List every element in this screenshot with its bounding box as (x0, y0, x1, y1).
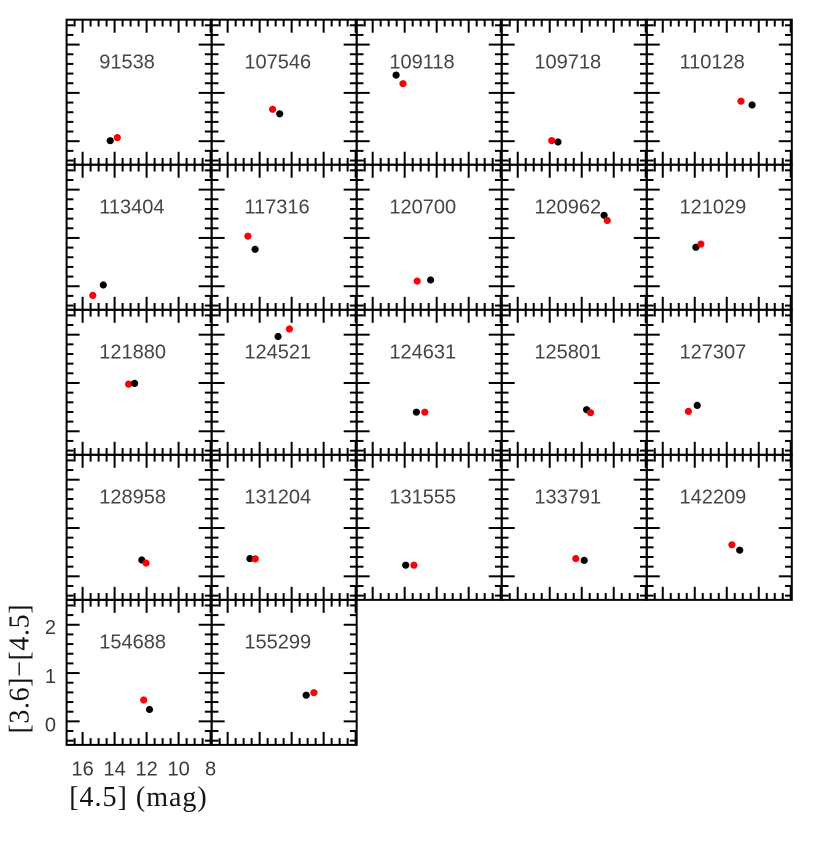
svg-text:124631: 124631 (389, 341, 456, 363)
svg-text:131204: 131204 (244, 486, 311, 508)
svg-text:121029: 121029 (679, 196, 746, 218)
svg-text:1: 1 (45, 666, 56, 688)
svg-text:154688: 154688 (99, 631, 166, 653)
svg-text:16: 16 (71, 759, 93, 781)
svg-text:121880: 121880 (99, 341, 166, 363)
svg-text:128958: 128958 (99, 486, 166, 508)
svg-text:127307: 127307 (679, 341, 746, 363)
svg-text:124521: 124521 (244, 341, 311, 363)
svg-text:142209: 142209 (679, 486, 746, 508)
svg-text:14: 14 (103, 759, 125, 781)
svg-text:117316: 117316 (244, 196, 309, 218)
svg-text:0: 0 (45, 715, 56, 737)
svg-text:133791: 133791 (534, 486, 601, 508)
svg-text:155299: 155299 (244, 631, 311, 653)
svg-text:109118: 109118 (389, 51, 454, 73)
svg-text:109718: 109718 (534, 51, 601, 73)
svg-text:125801: 125801 (534, 341, 601, 363)
svg-text:8: 8 (205, 759, 216, 781)
svg-text:12: 12 (135, 759, 157, 781)
svg-text:2: 2 (45, 617, 56, 639)
svg-text:110128: 110128 (679, 51, 744, 73)
svg-text:131555: 131555 (389, 486, 456, 508)
svg-text:[3.6]−[4.5]: [3.6]−[4.5] (4, 604, 35, 734)
svg-text:120700: 120700 (389, 196, 456, 218)
svg-text:120962: 120962 (534, 196, 601, 218)
svg-text:107546: 107546 (244, 51, 311, 73)
svg-text:[4.5] (mag): [4.5] (mag) (69, 782, 208, 813)
svg-text:113404: 113404 (99, 196, 164, 218)
svg-text:10: 10 (167, 759, 189, 781)
svg-text:91538: 91538 (99, 51, 155, 73)
